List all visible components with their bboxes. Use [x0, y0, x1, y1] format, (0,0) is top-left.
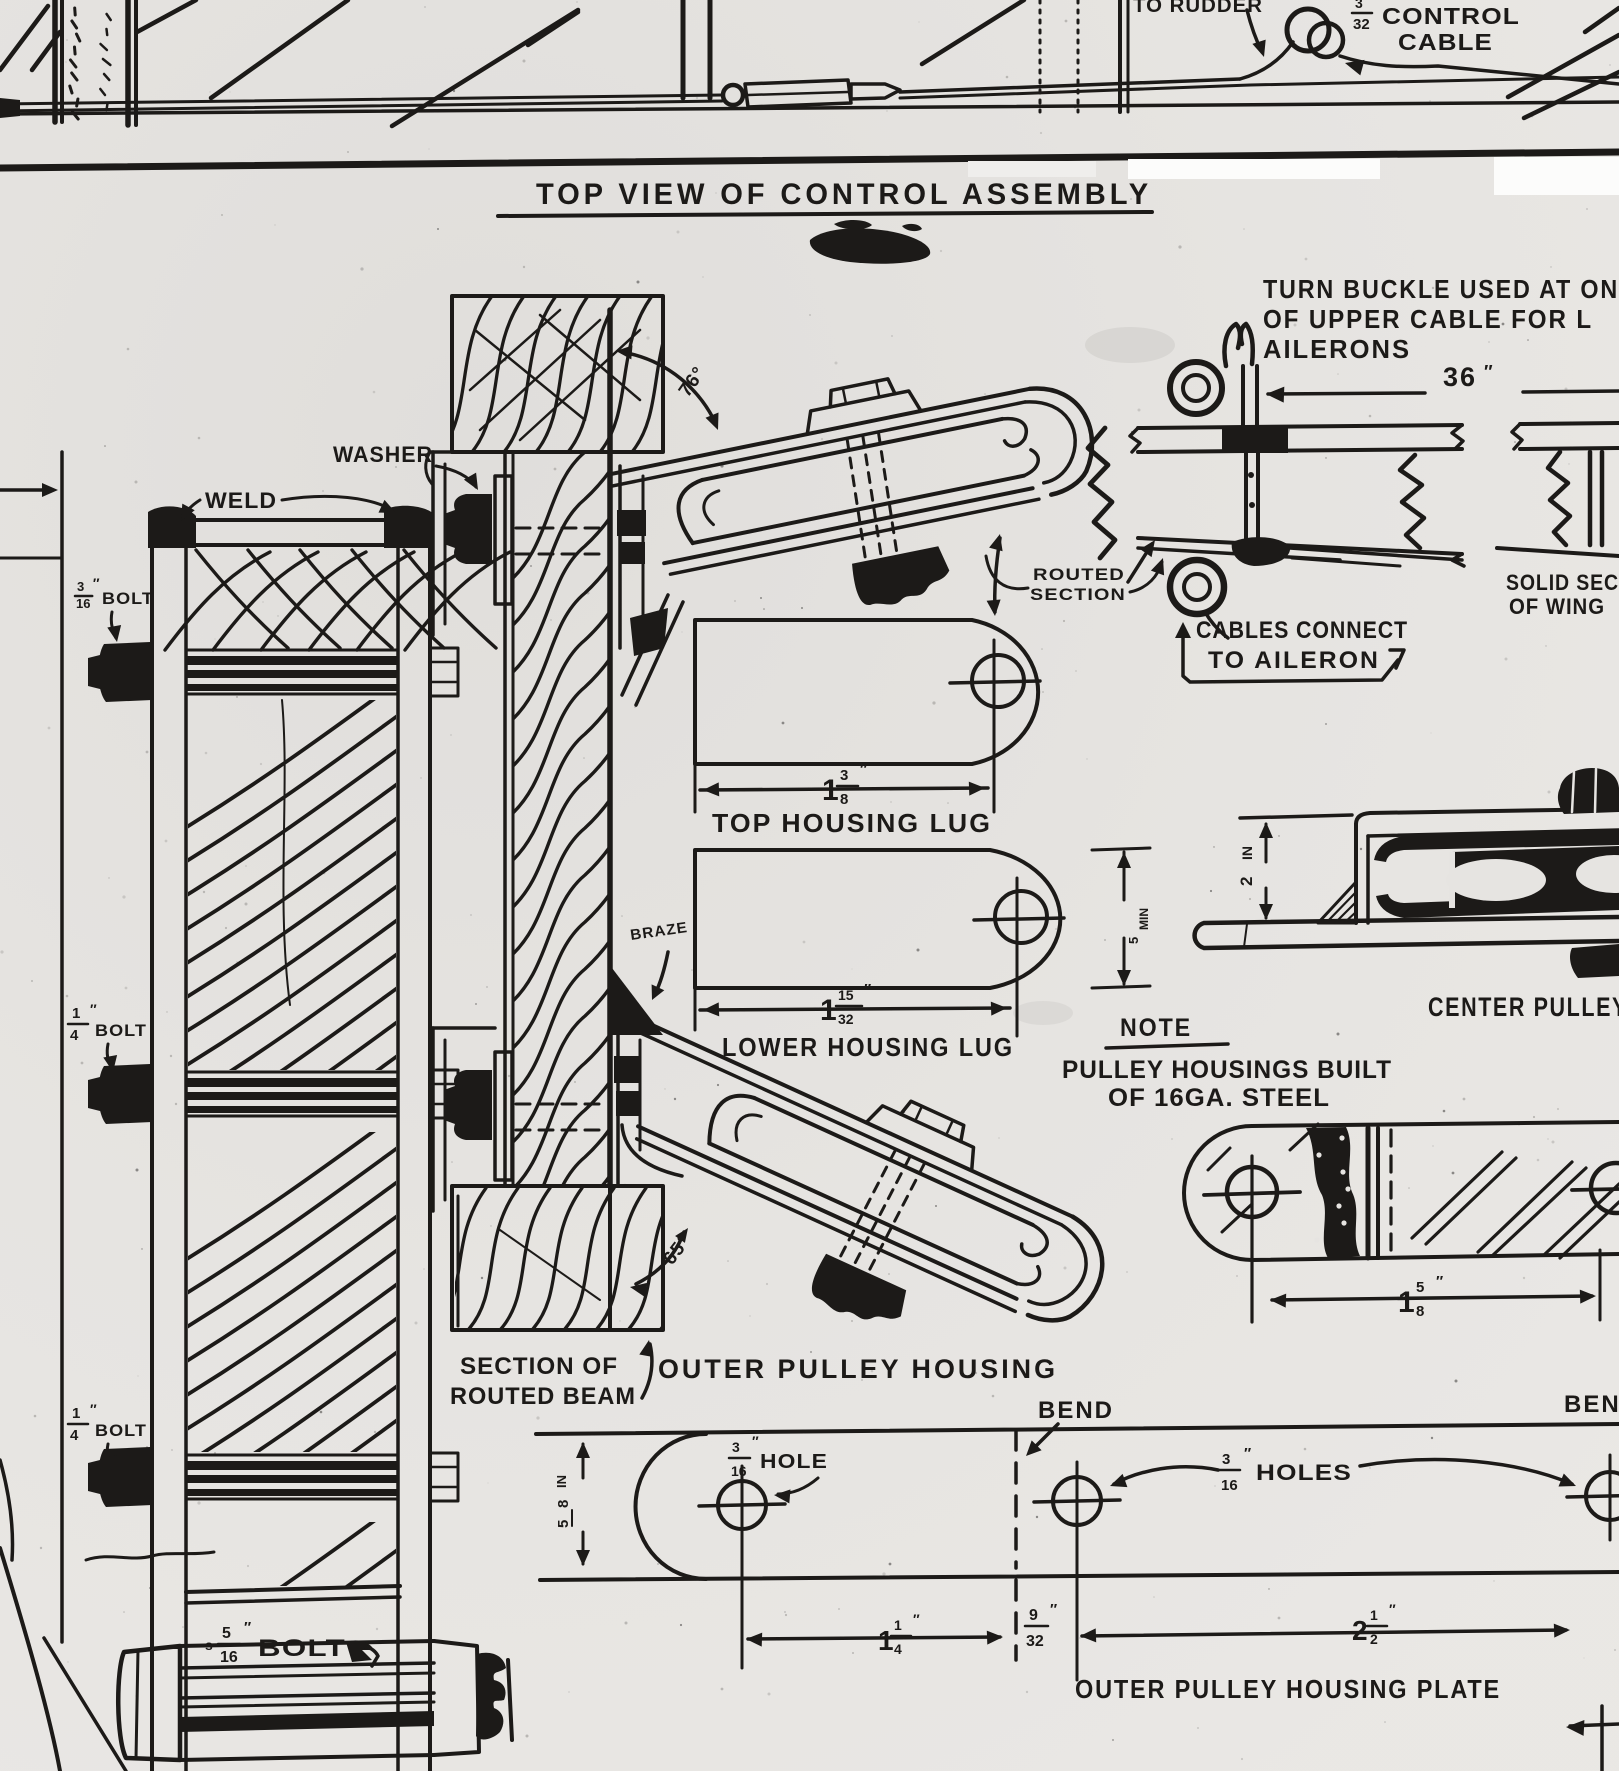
svg-text:LOWER HOUSING LUG: LOWER HOUSING LUG [722, 1032, 1014, 1062]
svg-text:CABLE: CABLE [1398, 29, 1493, 55]
svg-text:2: 2 [1370, 1631, 1378, 1647]
svg-text:″: ″ [1436, 1273, 1444, 1290]
svg-text:SECTION: SECTION [1030, 585, 1126, 604]
svg-text:CABLES CONNECT: CABLES CONNECT [1196, 617, 1408, 644]
svg-text:HOLE: HOLE [760, 1451, 828, 1473]
svg-text:″: ″ [1050, 1601, 1058, 1618]
svg-text:32: 32 [838, 1011, 854, 1027]
svg-text:BOLT: BOLT [102, 589, 154, 608]
svg-text:″: ″ [244, 1619, 252, 1636]
svg-text:TOP HOUSING LUG: TOP HOUSING LUG [712, 808, 992, 838]
svg-text:HOLES: HOLES [1256, 1460, 1352, 1485]
svg-text:8: 8 [840, 791, 848, 808]
svg-text:5: 5 [222, 1625, 231, 1642]
svg-text:16: 16 [731, 1463, 747, 1479]
svg-text:BEND: BEND [1564, 1391, 1619, 1418]
svg-text:36: 36 [1443, 362, 1477, 392]
svg-text:16: 16 [1221, 1477, 1238, 1494]
svg-text:BOLT: BOLT [95, 1421, 147, 1440]
svg-text:″: ″ [1484, 362, 1494, 382]
svg-text:″: ″ [90, 1401, 98, 1417]
svg-text:s: s [205, 1637, 213, 1653]
svg-text:BEND: BEND [1038, 1397, 1114, 1424]
svg-text:″: ″ [860, 761, 868, 778]
svg-text:1: 1 [894, 1617, 902, 1633]
svg-text:1: 1 [1370, 1607, 1378, 1623]
svg-text:OF UPPER CABLE FOR L: OF UPPER CABLE FOR L [1263, 304, 1593, 334]
svg-text:OUTER PULLEY HOUSING PLATE: OUTER PULLEY HOUSING PLATE [1075, 1674, 1501, 1704]
svg-text:″: ″ [864, 981, 872, 998]
svg-text:WASHER: WASHER [333, 442, 433, 467]
svg-text:1: 1 [820, 994, 837, 1027]
svg-text:ROUTED BEAM: ROUTED BEAM [450, 1383, 636, 1410]
svg-text:4: 4 [70, 1427, 79, 1444]
svg-text:″: ″ [1389, 1601, 1397, 1617]
svg-text:WELD: WELD [205, 488, 277, 513]
svg-text:1: 1 [72, 1405, 80, 1422]
svg-text:ROUTED: ROUTED [1033, 565, 1125, 584]
svg-text:″: ″ [93, 575, 100, 591]
svg-text:″: ″ [90, 1001, 98, 1017]
svg-text:9: 9 [1029, 1607, 1038, 1624]
svg-text:OF WING: OF WING [1509, 594, 1605, 619]
svg-text:PULLEY HOUSINGS BUILT: PULLEY HOUSINGS BUILT [1062, 1056, 1392, 1084]
svg-text:MIN: MIN [1137, 908, 1151, 930]
svg-text:TO RUDDER: TO RUDDER [1133, 0, 1263, 17]
svg-text:1: 1 [1398, 1286, 1415, 1319]
svg-text:2: 2 [1237, 877, 1256, 886]
svg-text:CONTROL: CONTROL [1382, 3, 1520, 29]
svg-text:″: ″ [752, 1433, 760, 1449]
svg-text:IN: IN [1239, 846, 1255, 860]
svg-text:OUTER PULLEY HOUSING: OUTER PULLEY HOUSING [658, 1354, 1058, 1384]
svg-text:1: 1 [72, 1005, 80, 1022]
svg-text:TOP VIEW OF CONTROL ASSEMBLY: TOP VIEW OF CONTROL ASSEMBLY [536, 178, 1152, 211]
svg-text:″: ″ [1244, 1445, 1252, 1462]
svg-text:TURN BUCKLE USED AT ON: TURN BUCKLE USED AT ON [1263, 274, 1619, 304]
svg-text:BOLT: BOLT [95, 1021, 147, 1040]
svg-text:8: 8 [1416, 1303, 1424, 1320]
svg-text:OF 16GA. STEEL: OF 16GA. STEEL [1108, 1084, 1330, 1112]
svg-text:TO AILERON: TO AILERON [1208, 647, 1380, 674]
svg-text:NOTE: NOTE [1120, 1014, 1192, 1042]
svg-text:1: 1 [878, 1625, 894, 1656]
svg-text:3: 3 [1222, 1451, 1230, 1468]
svg-text:32: 32 [1026, 1633, 1044, 1650]
svg-text:IN: IN [554, 1475, 569, 1488]
svg-text:5: 5 [1416, 1279, 1424, 1296]
svg-text:15: 15 [838, 987, 854, 1003]
svg-text:16: 16 [76, 596, 90, 611]
svg-text:1: 1 [822, 774, 839, 807]
svg-text:BOLT: BOLT [258, 1635, 346, 1662]
svg-text:5: 5 [555, 1520, 572, 1528]
svg-text:SOLID SEC: SOLID SEC [1506, 570, 1619, 595]
svg-text:3: 3 [840, 767, 848, 784]
svg-text:3: 3 [77, 579, 84, 594]
svg-text:8: 8 [555, 1500, 572, 1508]
svg-text:SECTION OF: SECTION OF [460, 1353, 618, 1380]
svg-text:3: 3 [1355, 0, 1363, 11]
svg-text:AILERONS: AILERONS [1263, 334, 1411, 364]
svg-text:″: ″ [913, 1611, 921, 1627]
svg-text:2: 2 [1352, 1615, 1368, 1646]
svg-text:3: 3 [732, 1439, 740, 1455]
svg-text:4: 4 [70, 1027, 79, 1044]
svg-text:16: 16 [220, 1649, 238, 1666]
svg-text:CENTER PULLEY: CENTER PULLEY [1428, 992, 1619, 1022]
svg-text:4: 4 [894, 1641, 902, 1657]
svg-text:5: 5 [1126, 937, 1141, 944]
svg-text:32: 32 [1353, 16, 1370, 33]
